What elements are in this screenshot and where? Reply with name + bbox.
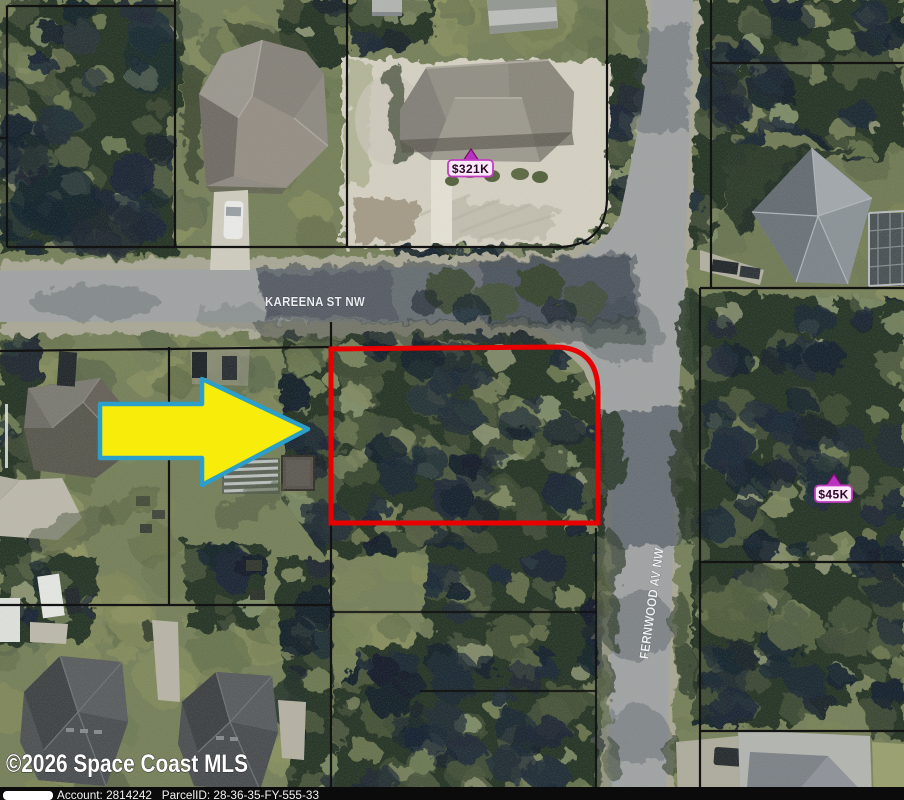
svg-text:$45K: $45K: [818, 488, 848, 502]
svg-text:©2026 Space Coast MLS: ©2026 Space Coast MLS: [6, 750, 248, 778]
svg-text:KAREENA ST NW: KAREENA ST NW: [265, 294, 365, 309]
svg-text:Account: 2814242 ParcelID: 2: Account: 2814242 ParcelID: 28-36-35-FY-5…: [57, 790, 319, 800]
svg-text:$321K: $321K: [452, 162, 489, 176]
